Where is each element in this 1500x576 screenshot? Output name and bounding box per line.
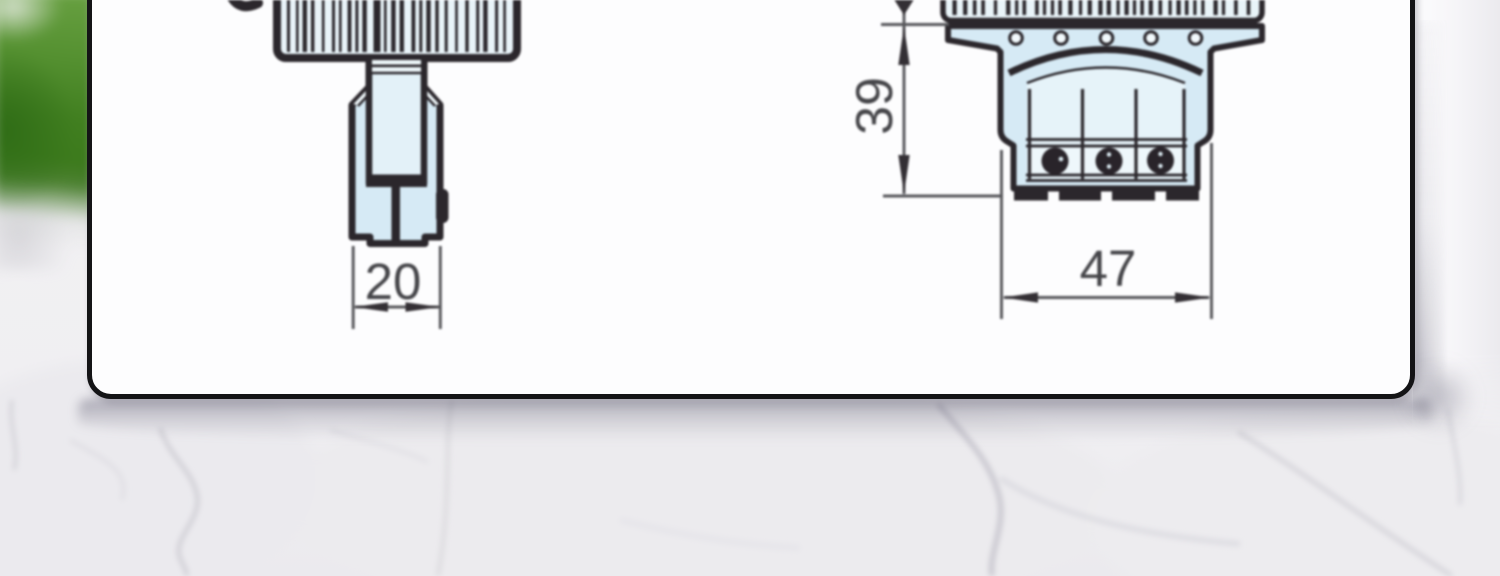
svg-text:47: 47 xyxy=(1080,240,1137,297)
svg-text:20: 20 xyxy=(365,253,422,310)
svg-text:39: 39 xyxy=(846,77,904,135)
